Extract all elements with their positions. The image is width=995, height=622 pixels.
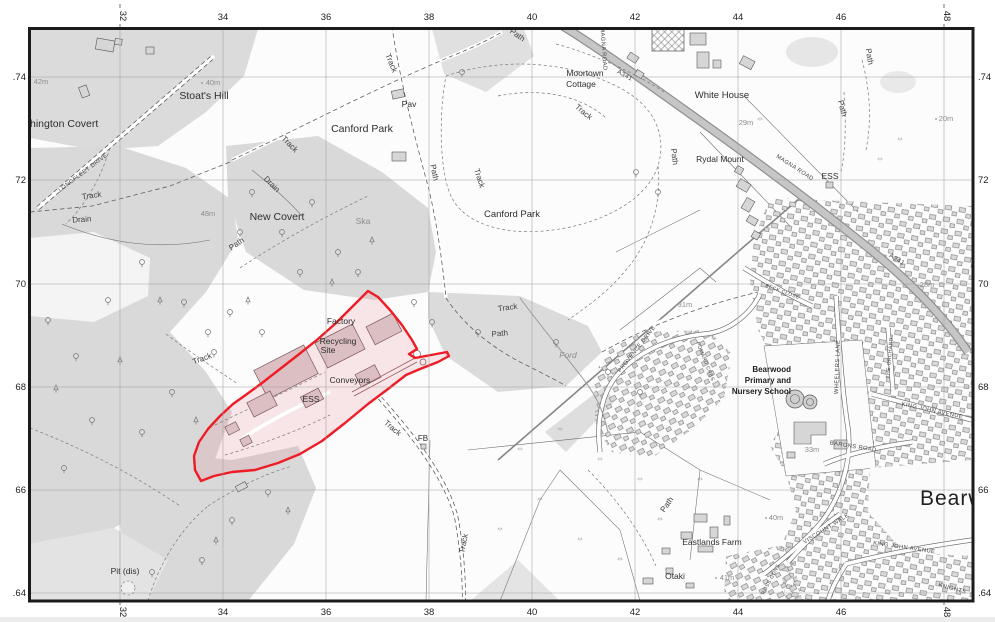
grid-bottom-38: 38 xyxy=(424,607,435,618)
label-school-3: Nursery School xyxy=(732,387,791,396)
label-moortown-1: Moortown xyxy=(566,68,604,78)
label-otaki: Otaki xyxy=(665,571,685,581)
grid-top-32: 32 xyxy=(117,11,128,22)
grid-bottom-42: 42 xyxy=(630,607,641,618)
spot-height-41m: 41m xyxy=(720,573,735,582)
grid-top-42: 42 xyxy=(630,12,641,23)
label-covert-partial: hington Covert xyxy=(30,118,98,130)
grid-bottom-32: 32 xyxy=(117,607,128,618)
label-school-1: Bearwood xyxy=(752,365,791,374)
grid-left-74: .74 xyxy=(13,72,26,83)
grid-right-64: .64 xyxy=(978,588,991,599)
spot-height-28m: 28m xyxy=(920,280,935,289)
label-canford-park-a: Canford Park xyxy=(331,123,394,135)
spot-height-40m-b: 40m xyxy=(769,513,784,522)
label-ska: Ska xyxy=(356,216,371,226)
grid-left-70: 70 xyxy=(15,279,26,290)
grid-left-72: 72 xyxy=(15,175,26,186)
label-fb: FB xyxy=(418,434,428,443)
grid-top-40: 40 xyxy=(527,12,538,23)
spot-height-31m: 31m xyxy=(678,300,693,309)
grid-right-66: 66 xyxy=(978,485,989,496)
grid-top-48: 48 xyxy=(941,11,952,22)
label-pav: Pav xyxy=(402,99,417,109)
label-bearwood-big: Bearw xyxy=(920,487,985,510)
grid-top-38: 38 xyxy=(424,12,435,23)
grid-left-68: 68 xyxy=(15,382,26,393)
spot-height-33m: 33m xyxy=(805,445,820,454)
label-site-conveyors: Conveyors xyxy=(330,375,371,385)
label-eastlands-farm: Eastlands Farm xyxy=(682,537,742,547)
label-white-house: White House xyxy=(695,90,749,101)
spot-height-40m-a: 40m xyxy=(206,78,221,87)
grid-bottom-40: 40 xyxy=(527,607,538,618)
grid-bottom-36: 36 xyxy=(321,607,332,618)
label-new-covert: New Covert xyxy=(250,211,305,223)
map-canvas: hington Covert Stoat's Hill Canford Park… xyxy=(0,0,995,622)
label-site-recycling-2: Site xyxy=(321,345,336,355)
grid-bottom-44: 44 xyxy=(733,607,744,618)
grid-left-66: 66 xyxy=(15,485,26,496)
label-pit-dis: Pit (dis) xyxy=(111,566,140,576)
label-drain-1: Drain xyxy=(72,214,92,224)
spot-height-20m: 20m xyxy=(939,114,954,123)
grid-top-44: 44 xyxy=(733,12,744,23)
map-interior: hington Covert Stoat's Hill Canford Park… xyxy=(29,22,985,601)
label-stoats-hill: Stoat's Hill xyxy=(179,90,228,102)
spot-height-42m: 42m xyxy=(34,77,49,86)
label-rydal-mount: Rydal Mount xyxy=(696,154,744,164)
label-moortown-2: Cottage xyxy=(566,79,596,89)
label-ford: Ford xyxy=(559,350,577,360)
grid-bottom-48: 48 xyxy=(941,607,952,618)
grid-bottom-46: 46 xyxy=(836,607,847,618)
grid-top-46: 46 xyxy=(836,12,847,23)
label-path-7: Path xyxy=(491,328,508,338)
grid-bottom-34: 34 xyxy=(218,607,229,618)
label-school-2: Primary and xyxy=(745,376,791,385)
bottom-strip xyxy=(0,617,995,622)
spot-height-29m: 29m xyxy=(739,118,754,127)
label-site-ess: ESS xyxy=(302,394,319,404)
label-canford-park-b: Canford Park xyxy=(484,209,540,220)
os-map-extract: hington Covert Stoat's Hill Canford Park… xyxy=(0,0,995,622)
grid-right-72: 72 xyxy=(978,175,989,186)
grid-top-36: 36 xyxy=(321,12,332,23)
spot-height-48m: 48m xyxy=(201,209,216,218)
grid-right-68: 68 xyxy=(978,382,989,393)
grid-right-74: .74 xyxy=(978,72,991,83)
grid-right-70: 70 xyxy=(978,279,989,290)
label-ess-magna: ESS xyxy=(821,171,838,181)
label-site-factory: Factory xyxy=(327,316,356,326)
grid-left-64: .64 xyxy=(13,588,26,599)
grid-top-34: 34 xyxy=(218,12,229,23)
